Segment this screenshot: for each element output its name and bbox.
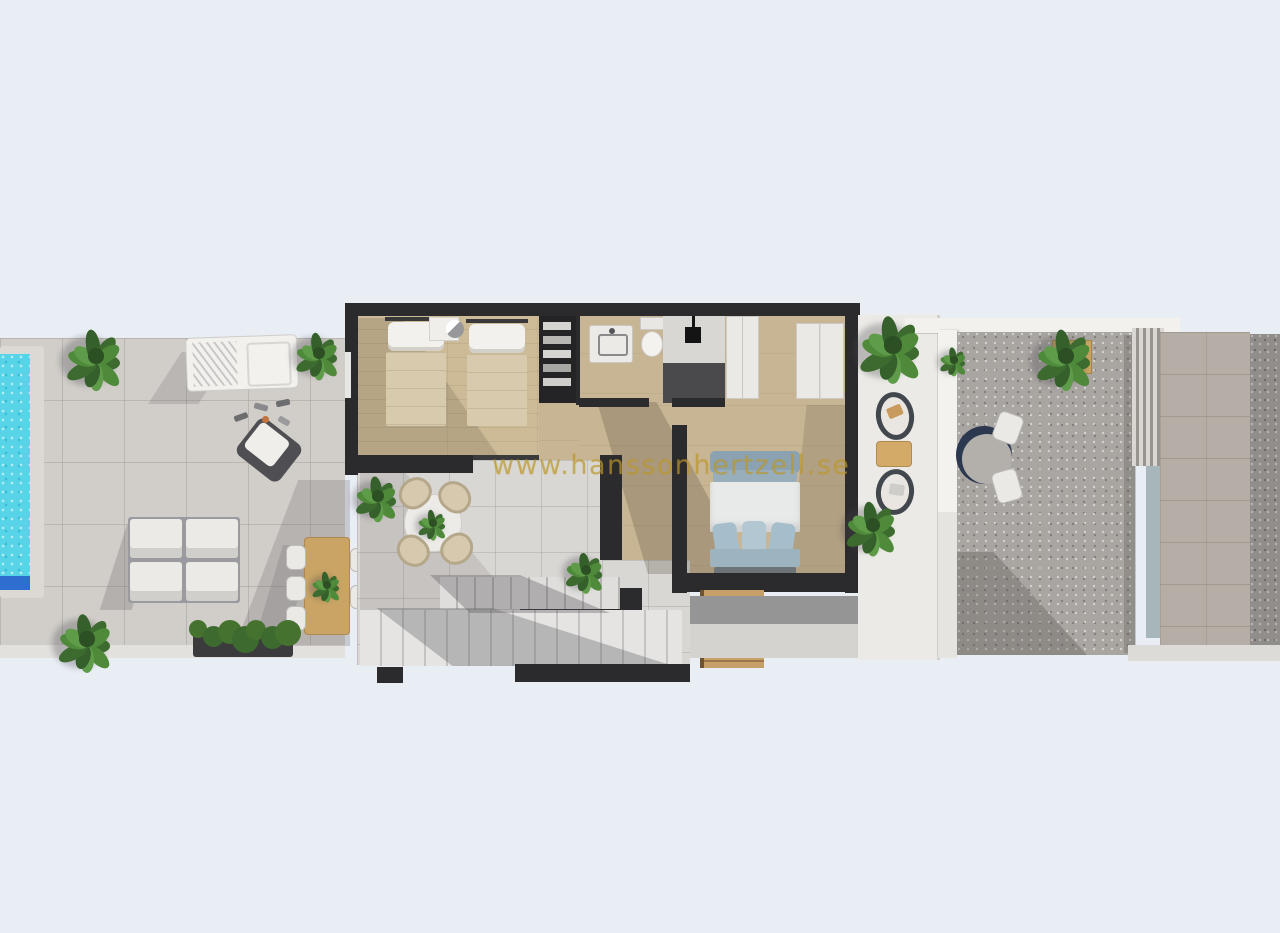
shower-floor: [663, 363, 725, 403]
dining-chair: [286, 545, 306, 570]
wall-bath-bottom: [579, 398, 649, 407]
dining-chair: [286, 576, 306, 601]
table-plant: [312, 570, 342, 600]
wall-bath-bottom: [672, 398, 725, 407]
wall-top: [345, 303, 860, 316]
watermark-text: www.hanssonhertzell.se: [492, 450, 850, 481]
toilet: [640, 317, 664, 363]
closet-shelf: [543, 364, 571, 372]
closet-shelf: [543, 336, 571, 344]
potted-plant: [860, 312, 926, 378]
boundary-stone-wall: [1160, 332, 1250, 654]
wardrobe: [796, 323, 844, 399]
step-block: [377, 667, 403, 683]
tray-items: [232, 398, 292, 428]
potted-plant: [846, 498, 900, 552]
bedside-lamp: [446, 320, 464, 338]
glass-panel: [1146, 466, 1160, 638]
swimming-pool: [0, 354, 30, 590]
stairs-lower-flight: [360, 610, 682, 666]
pool-step: [0, 576, 30, 590]
wall-bedroom-bottom: [345, 455, 473, 473]
daybed-cushion: [246, 341, 292, 387]
potted-plant: [66, 326, 126, 386]
potted-plant: [58, 610, 116, 668]
hedge-foliage: [193, 620, 293, 650]
terrace-railing-lower: [938, 512, 957, 658]
closet-shelf: [543, 350, 571, 358]
potted-plant: [356, 474, 400, 518]
potted-plant: [940, 346, 968, 374]
stairs-bottom-wall: [515, 664, 690, 682]
sun-loungers: [128, 517, 240, 603]
closet-shelf: [543, 378, 571, 386]
window-sliver: [345, 352, 351, 398]
side-table: [876, 441, 912, 467]
neighbor-gravel: [1250, 334, 1280, 652]
bottom-walk-strip: [1128, 645, 1280, 661]
floorplan-render: www.hanssonhertzell.se: [0, 0, 1280, 933]
wall-closet-side: [576, 313, 580, 405]
potted-plant: [296, 330, 342, 376]
potted-plant: [566, 550, 606, 590]
single-bed: [466, 319, 528, 427]
wardrobe: [726, 316, 759, 399]
table-plant: [418, 508, 448, 538]
daybed: [185, 334, 299, 392]
closet-shelf: [543, 322, 571, 330]
bathroom-vanity: [589, 325, 633, 363]
shower-head: [685, 327, 701, 343]
potted-plant: [1036, 326, 1096, 386]
daybed-throw: [192, 341, 238, 387]
